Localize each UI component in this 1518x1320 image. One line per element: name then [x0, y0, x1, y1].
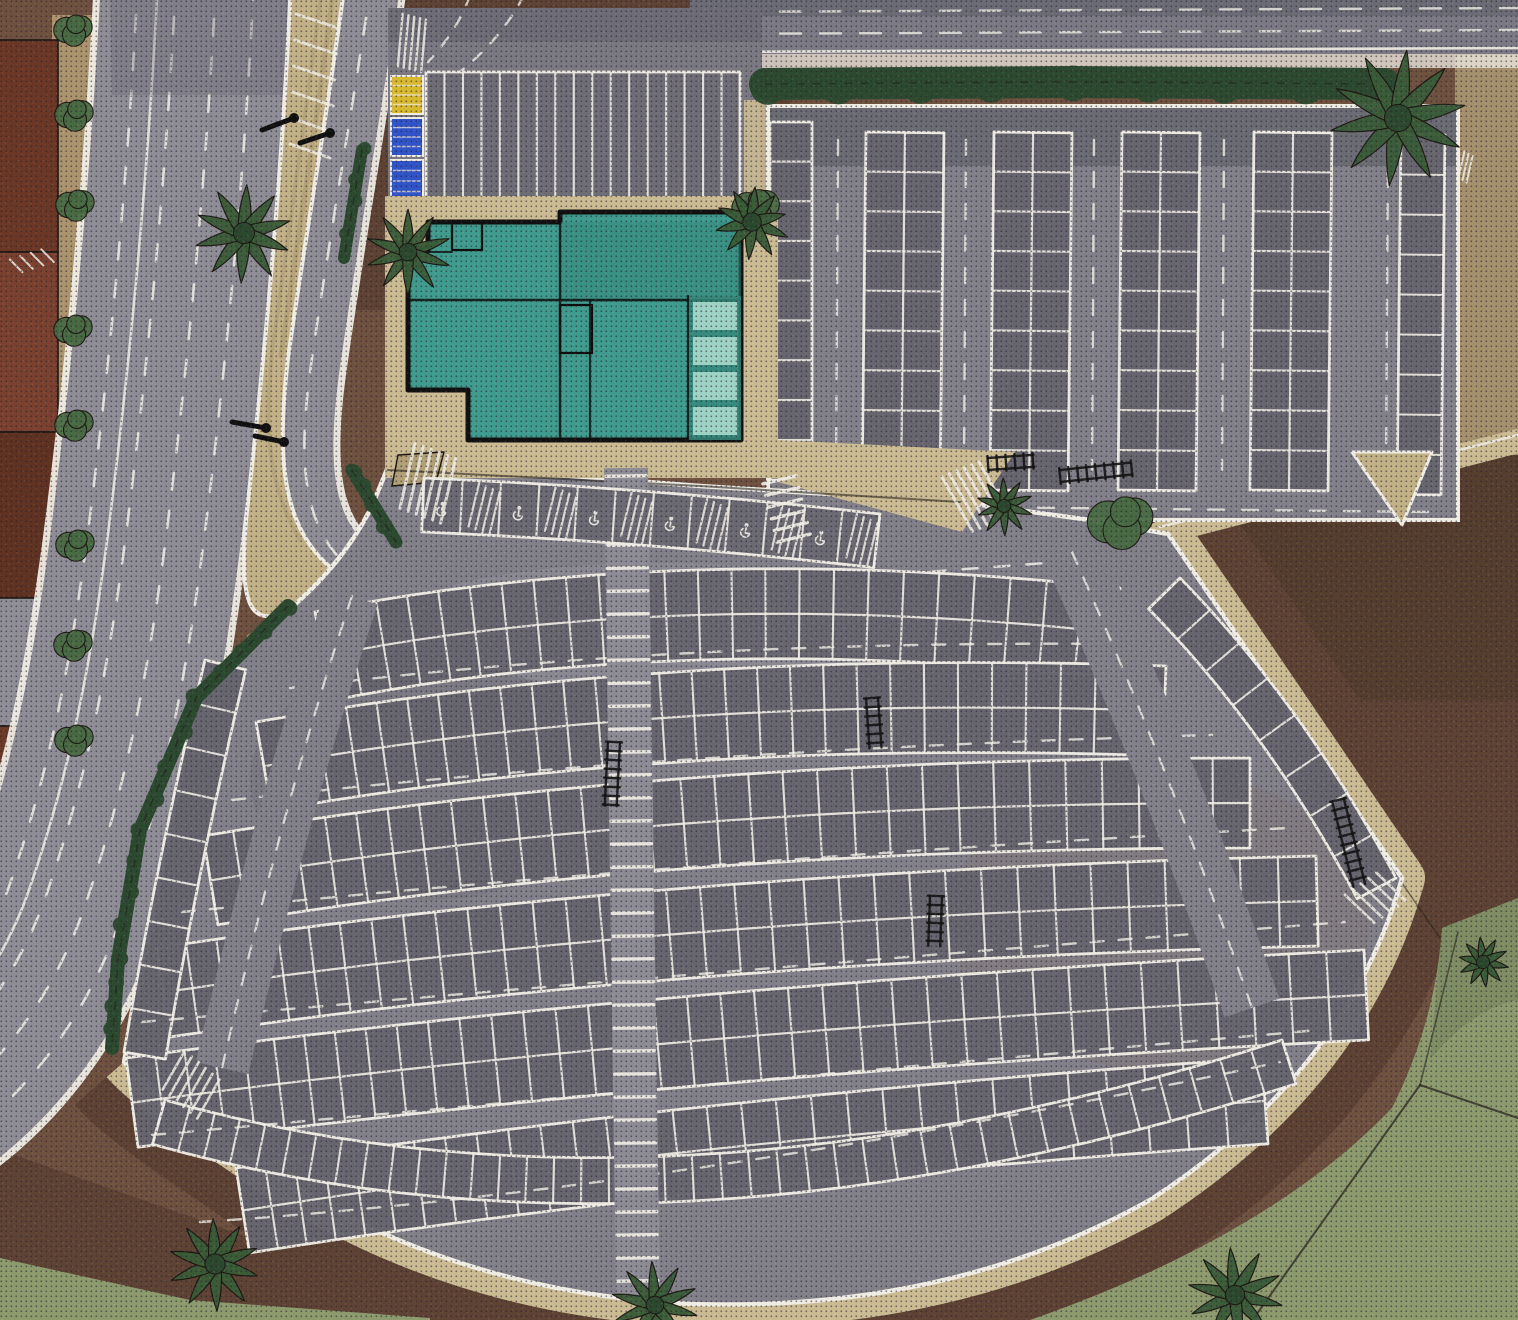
halftone-texture-light — [0, 0, 1518, 1320]
aerial-parking-lot-illustration — [0, 0, 1518, 1320]
scene-canvas — [0, 0, 1518, 1320]
